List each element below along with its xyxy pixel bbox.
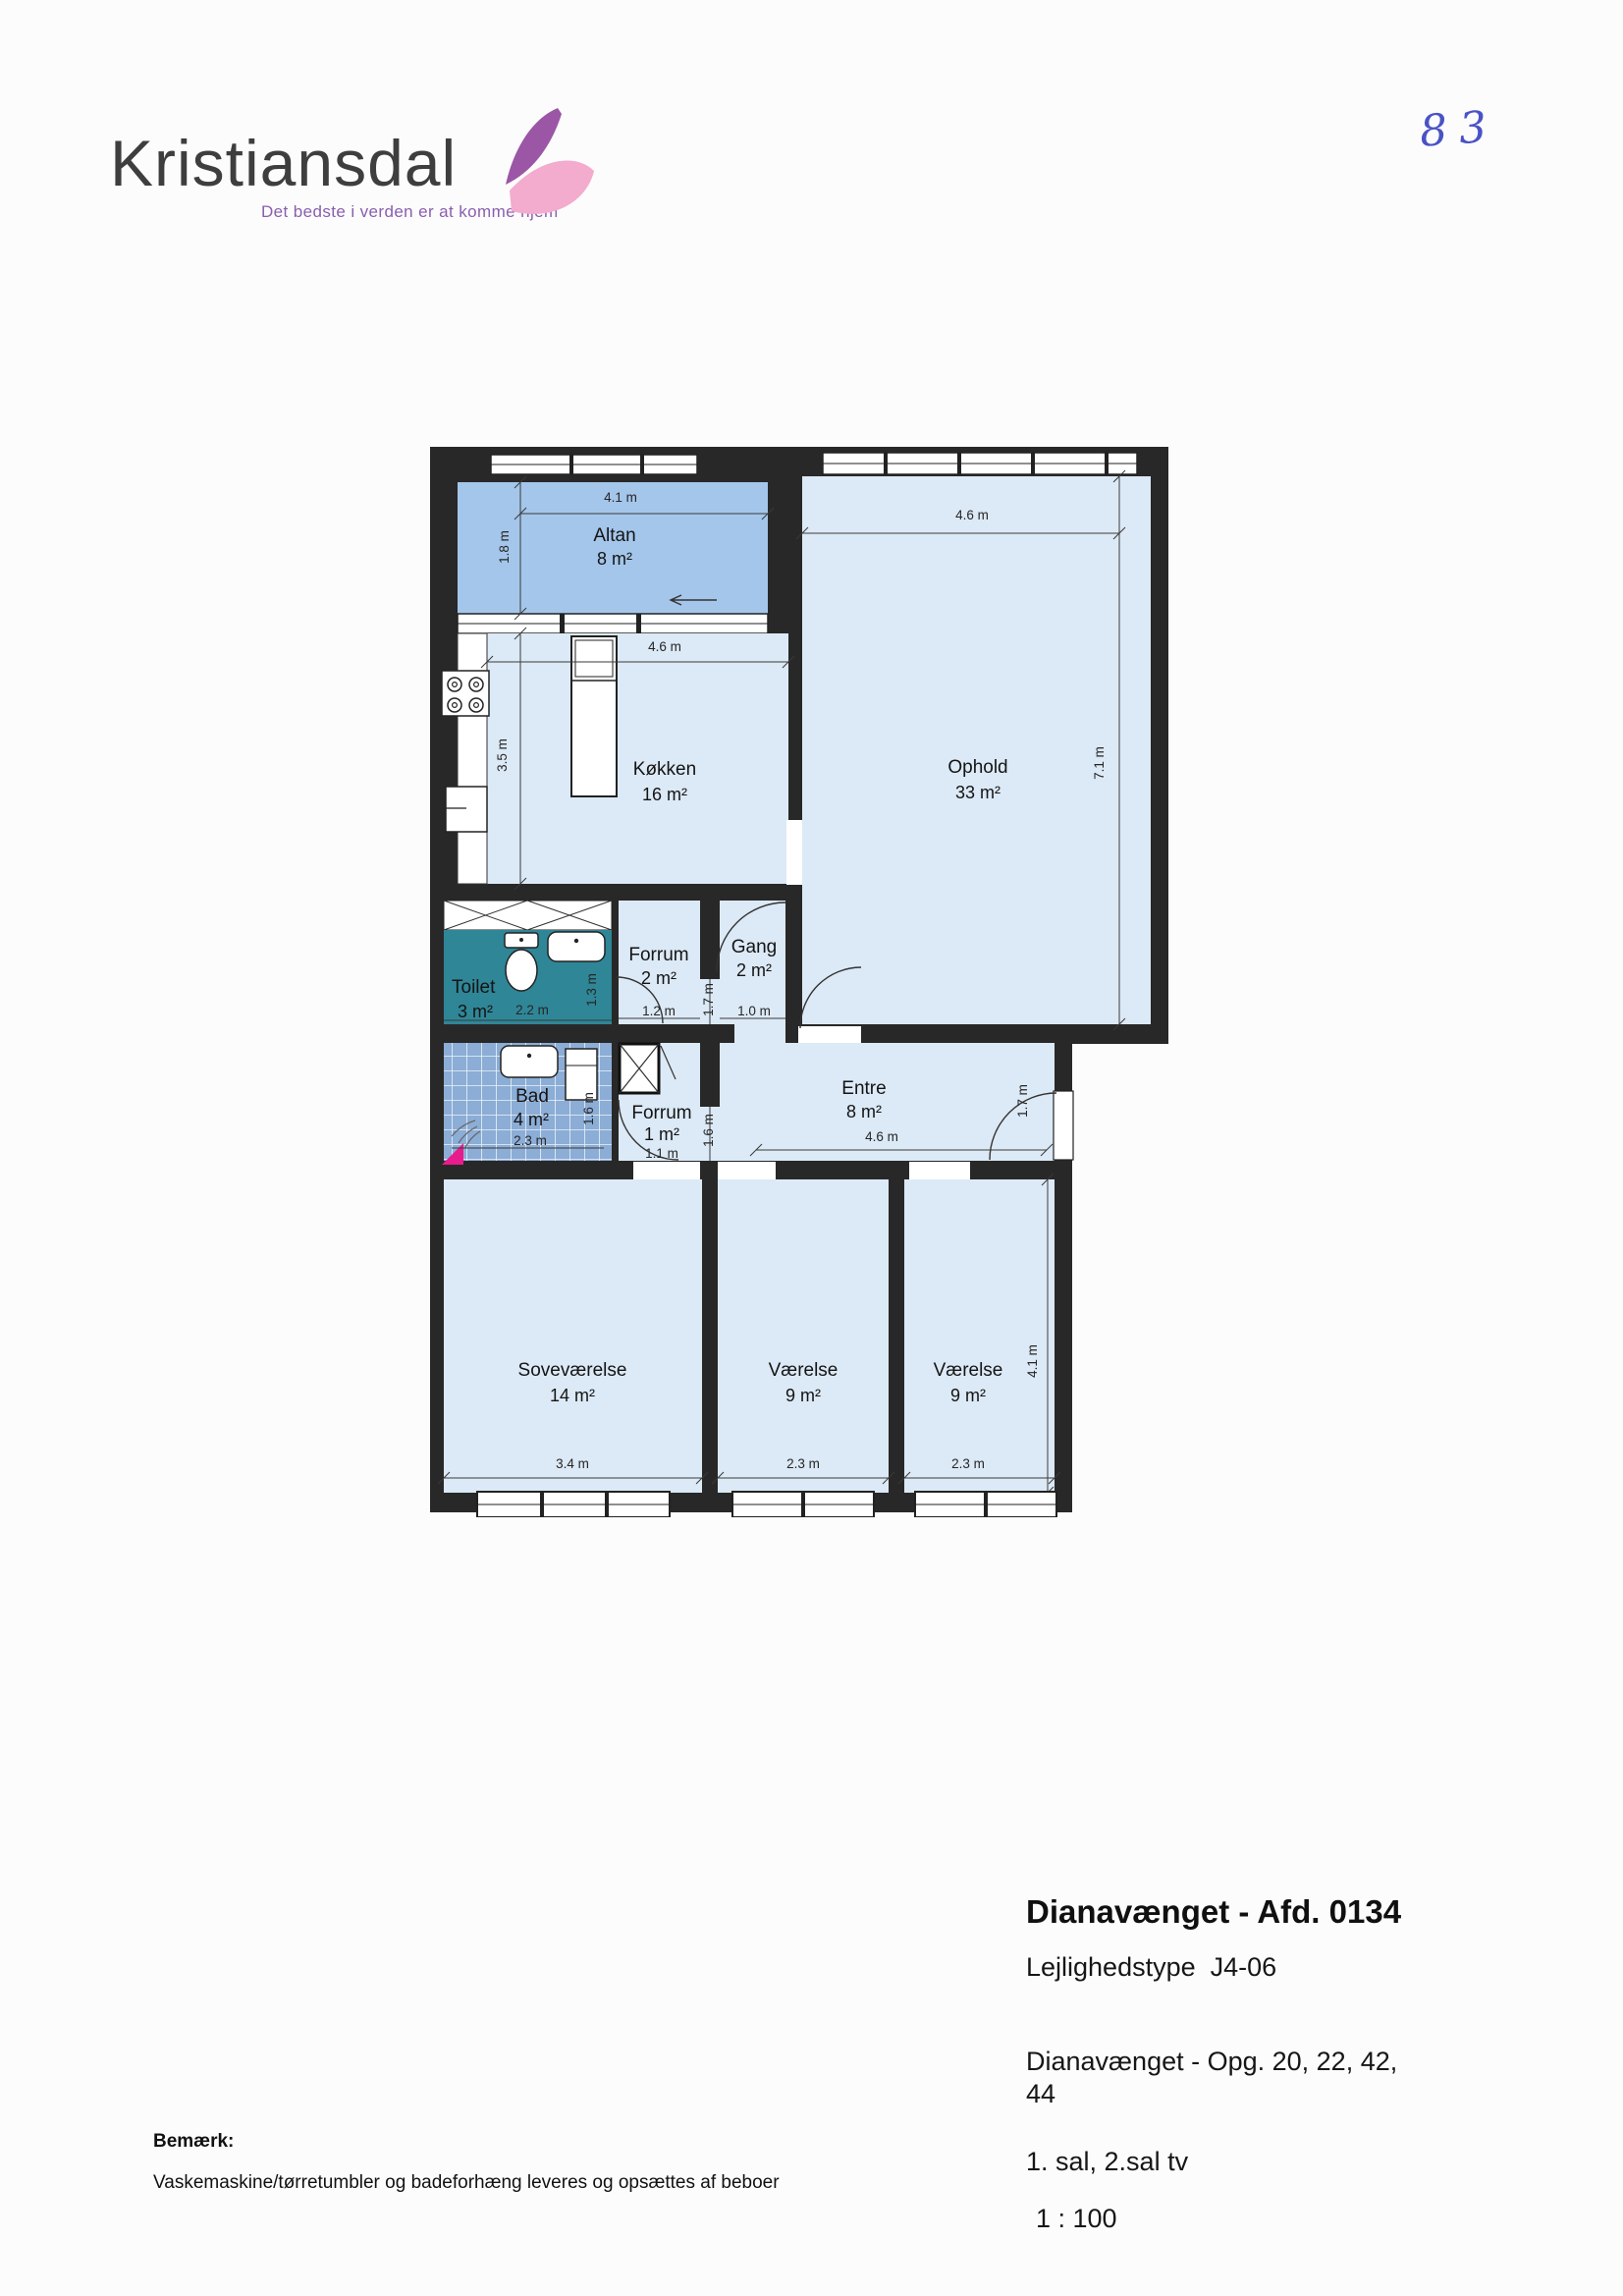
stove-icon xyxy=(442,671,489,716)
room-area: 8 m² xyxy=(846,1102,882,1121)
room-area: 16 m² xyxy=(642,785,687,804)
room-toilet: Toilet 3 m² 2.2 m 1.3 m xyxy=(444,901,612,1024)
room-entre: Entre 8 m² 4.6 m 1.7 m xyxy=(720,1043,1073,1161)
room-area: 9 m² xyxy=(950,1386,986,1405)
dim-depth: 1.6 m xyxy=(581,1092,596,1125)
dim-depth: 1.7 m xyxy=(1015,1084,1030,1118)
dim-depth: 1.3 m xyxy=(584,973,599,1007)
dim-width: 1.1 m xyxy=(645,1146,678,1161)
toilet-icon xyxy=(505,933,538,991)
address-line-2: 44 xyxy=(1026,2079,1055,2109)
drawing-scale: 1 : 100 xyxy=(1036,2204,1117,2234)
dim-depth: 4.1 m xyxy=(1025,1344,1040,1378)
room-vaerelse-1: Værelse 9 m² 2.3 m xyxy=(712,1179,894,1493)
dim-width: 2.3 m xyxy=(951,1456,985,1471)
room-area: 8 m² xyxy=(597,549,632,569)
dim-width: 3.4 m xyxy=(556,1456,589,1471)
room-label: Altan xyxy=(593,525,635,546)
room-label: Forrum xyxy=(631,1103,691,1123)
bath-sink-icon xyxy=(501,1046,558,1077)
room-label: Forrum xyxy=(628,945,688,965)
room-ophold: 4.6 m 7.1 m Ophold 33 m² xyxy=(796,453,1151,1044)
dim-width: 4.6 m xyxy=(865,1129,898,1144)
dim-width: 2.3 m xyxy=(786,1456,820,1471)
room-label: Køkken xyxy=(633,759,696,780)
wardrobe-hatch xyxy=(444,901,612,930)
room-label: Værelse xyxy=(934,1360,1003,1381)
dim-width: 4.1 m xyxy=(604,490,637,505)
balcony-glazing xyxy=(458,614,768,633)
dim-depth: 3.5 m xyxy=(495,738,510,772)
brand-leaf-icon xyxy=(485,104,605,230)
room-area: 2 m² xyxy=(736,960,772,980)
dim-width: 2.2 m xyxy=(515,1003,549,1017)
address-line-1: Dianavænget - Opg. 20, 22, 42, xyxy=(1026,2047,1397,2077)
apartment-type: Lejlighedstype J4-06 xyxy=(1026,1952,1276,1983)
dim-depth: 1.8 m xyxy=(497,530,512,564)
floor-info: 1. sal, 2.sal tv xyxy=(1026,2147,1188,2177)
room-vaerelse-2: Værelse 9 m² 2.3 m 4.1 m xyxy=(898,1174,1060,1499)
balcony-railing-window xyxy=(491,455,697,474)
dim-width: 4.6 m xyxy=(955,508,989,522)
ophold-window xyxy=(823,453,1137,474)
room-area: 33 m² xyxy=(955,783,1001,802)
brand-logo-text: Kristiansdal xyxy=(110,126,457,200)
room-label: Bad xyxy=(515,1086,549,1107)
scanned-floorplan-page: Kristiansdal Det bedste i verden er at k… xyxy=(0,0,1623,2296)
dim-depth: 7.1 m xyxy=(1092,746,1107,780)
room-area: 9 m² xyxy=(785,1386,821,1405)
bedroom-windows xyxy=(477,1492,1056,1517)
room-bad: Bad 4 m² 2.3 m 1.6 m xyxy=(442,1043,612,1165)
room-area: 3 m² xyxy=(458,1002,493,1021)
room-area: 4 m² xyxy=(514,1110,549,1129)
room-label: Soveværelse xyxy=(518,1360,627,1381)
room-sovevaerelse: Soveværelse 14 m² 3.4 m xyxy=(438,1179,708,1493)
dim-width: 4.6 m xyxy=(648,639,681,654)
room-gang: Gang 2 m² 1.0 m xyxy=(717,901,785,1043)
note-label: Bemærk: xyxy=(153,2131,234,2153)
room-label: Værelse xyxy=(769,1360,839,1381)
room-label: Toilet xyxy=(452,977,496,998)
room-label: Entre xyxy=(841,1078,886,1099)
room-label: Ophold xyxy=(947,757,1007,778)
washbasin-icon xyxy=(548,932,605,961)
plan-title: Dianavænget - Afd. 0134 xyxy=(1026,1893,1401,1931)
room-area: 1 m² xyxy=(644,1124,679,1144)
kitchen-sink-icon xyxy=(446,787,487,832)
room-label: Gang xyxy=(731,937,777,957)
kitchen-island xyxy=(571,636,617,796)
note-text: Vaskemaskine/tørretumbler og badeforhæng… xyxy=(153,2172,780,2194)
dim-width: 1.2 m xyxy=(642,1004,676,1018)
dim-depth: 1.6 m xyxy=(701,1114,716,1147)
dim-depth: 1.7 m xyxy=(701,983,716,1016)
handwritten-page-number: 83 xyxy=(1418,101,1499,156)
room-area: 2 m² xyxy=(641,968,676,988)
room-area: 14 m² xyxy=(550,1386,595,1405)
dim-width: 1.0 m xyxy=(737,1004,771,1018)
dim-width: 2.3 m xyxy=(514,1133,547,1148)
floorplan-drawing: Altan 8 m² 4.1 m 1.8 m xyxy=(422,437,1168,1517)
